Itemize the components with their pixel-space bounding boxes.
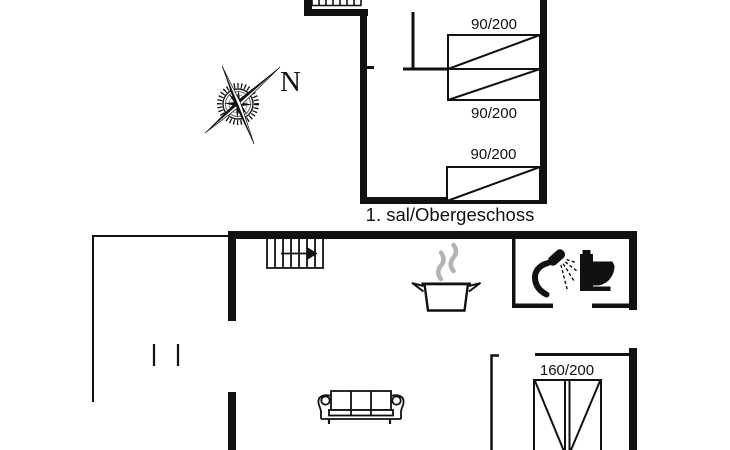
steam-icon <box>438 253 443 280</box>
window-size-label-2: 90/200 <box>448 106 540 121</box>
double-door-symbol <box>534 380 601 450</box>
sofa-icon <box>318 391 403 424</box>
terrace-outline <box>93 236 230 402</box>
upper-stairs-icon <box>311 0 362 6</box>
door-size-label: 160/200 <box>531 363 603 378</box>
shower-icon <box>535 247 577 294</box>
stairs-icon <box>267 239 323 268</box>
window-size-label-1: 90/200 <box>448 17 540 32</box>
floorplan-canvas: 90/200 90/200 90/200 1. sal/Obergeschoss… <box>0 0 730 450</box>
steam-icon <box>451 245 456 271</box>
compass-rose-icon <box>205 66 280 144</box>
compass-north-label: N <box>280 68 301 97</box>
floorplan-drawing <box>0 0 730 450</box>
toilet-icon <box>580 250 615 291</box>
door-opening-marks <box>154 344 178 366</box>
bedroom-wall-corner <box>492 356 500 450</box>
window-size-label-3: 90/200 <box>447 147 540 162</box>
ground-floor-walls <box>228 231 637 450</box>
upper-floor-caption: 1. sal/Obergeschoss <box>350 206 550 225</box>
cooking-pot-icon <box>413 245 481 311</box>
